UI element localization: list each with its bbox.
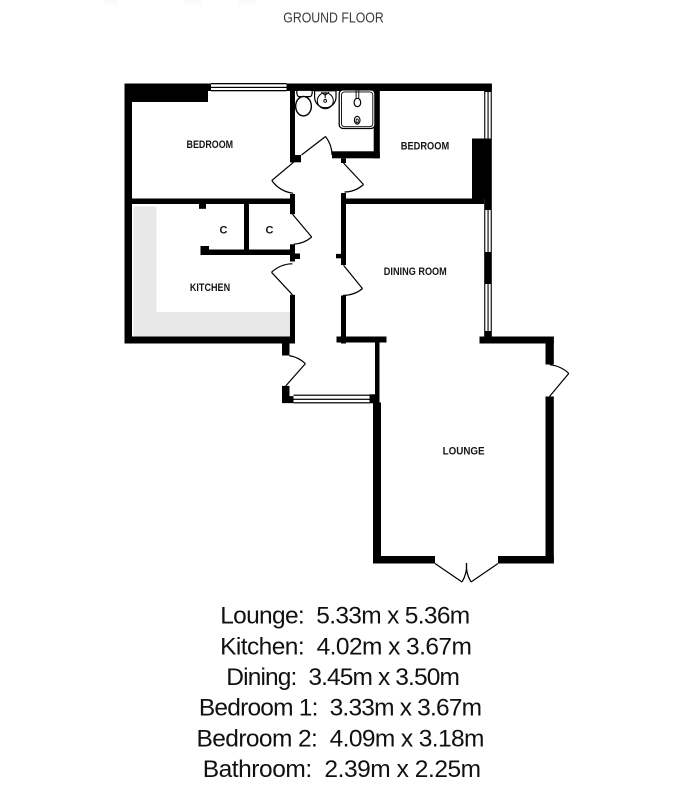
svg-text:C: C — [266, 225, 274, 237]
svg-text:KITCHEN: KITCHEN — [190, 282, 230, 294]
svg-text:Lounge: 5.33m x 5.36m: Lounge: 5.33m x 5.36m — [220, 603, 470, 630]
svg-text:Bathroom: 2.39m x 2.25m: Bathroom: 2.39m x 2.25m — [203, 756, 481, 783]
svg-text:C: C — [220, 225, 228, 237]
svg-text:Bedroom 1: 3.33m x 3.67m: Bedroom 1: 3.33m x 3.67m — [199, 695, 482, 722]
svg-text:DINING ROOM: DINING ROOM — [384, 266, 447, 278]
svg-text:BEDROOM: BEDROOM — [187, 139, 234, 151]
svg-text:BEDROOM: BEDROOM — [401, 140, 449, 152]
svg-text:Dining: 3.45m x 3.50m: Dining: 3.45m x 3.50m — [226, 664, 460, 691]
svg-text:Bedroom 2: 4.09m x 3.18m: Bedroom 2: 4.09m x 3.18m — [197, 725, 485, 752]
svg-text:GROUND FLOOR: GROUND FLOOR — [283, 11, 384, 27]
svg-text:LOUNGE: LOUNGE — [443, 445, 485, 457]
svg-text:Kitchen: 4.02m x 3.67m: Kitchen: 4.02m x 3.67m — [220, 633, 472, 660]
